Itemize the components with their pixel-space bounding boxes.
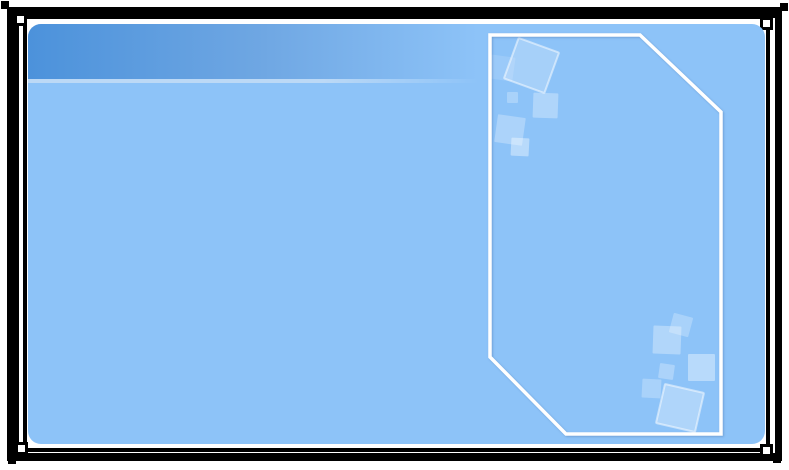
frame-corner-bead-top-left [14, 13, 27, 26]
header-band [28, 24, 765, 79]
frame-corner-bead-bottom-left [15, 442, 28, 455]
frame-corner-nub-top-right [780, 3, 788, 11]
header-separator-line [28, 79, 765, 83]
slide-canvas [0, 0, 789, 470]
frame-corner-nub-bottom-right [773, 455, 781, 463]
frame-corner-nub-top-left [1, 1, 9, 9]
slide-content-area [28, 24, 765, 444]
frame-corner-bead-bottom-right [760, 444, 773, 457]
frame-corner-nub-bottom-left [8, 456, 16, 464]
